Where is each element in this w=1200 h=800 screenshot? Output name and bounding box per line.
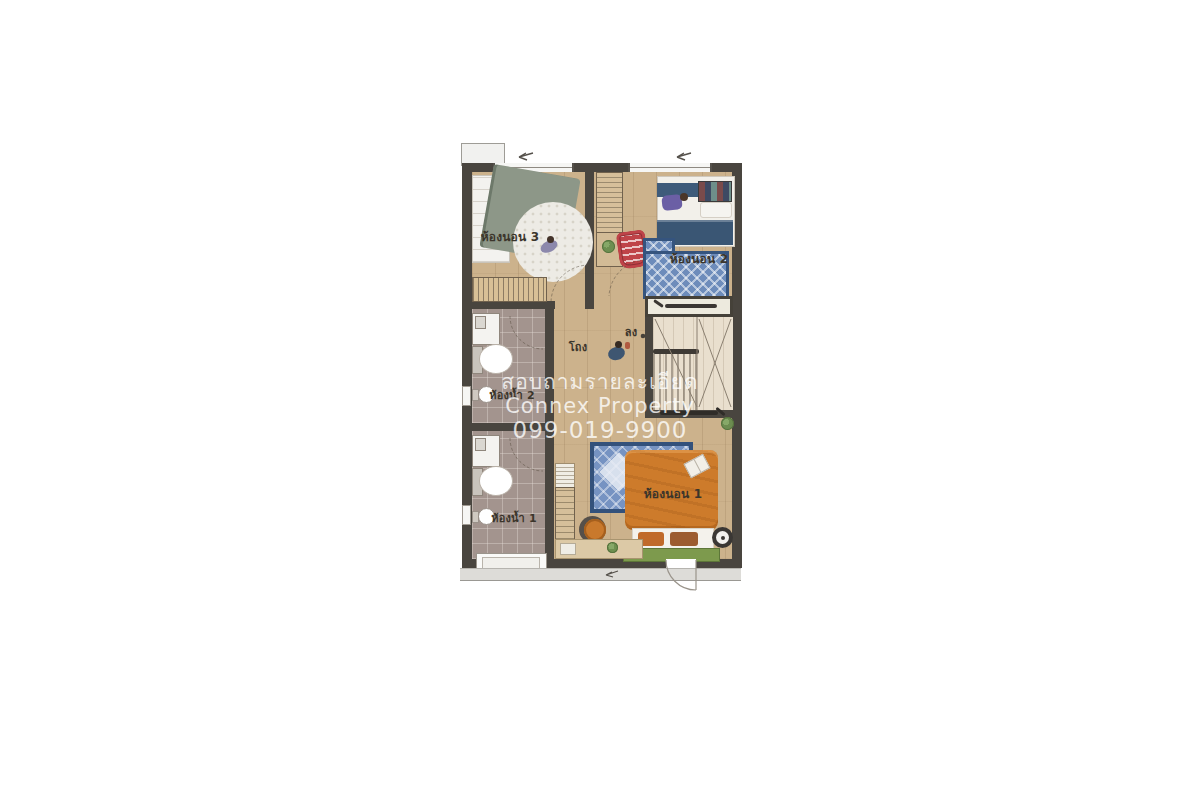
bathroom1-wall-window [462, 505, 471, 525]
bedroom1-label: ห้องนอน 1 [620, 488, 726, 502]
floor-plan: ห้องนอน 3 ห้องนอน 2 ลง โถง [460, 143, 742, 579]
bedroom2-label: ห้องนอน 2 [656, 253, 742, 267]
bed2-person-head [680, 193, 688, 201]
bed2-white-pillow [700, 202, 732, 218]
closet-rail-bar [665, 304, 717, 308]
bathroom1-toilet-bowl [479, 466, 513, 496]
window-bedroom2 [628, 163, 712, 172]
bathroom1-label: ห้องน้ำ 1 [476, 513, 552, 526]
stair-railing [653, 349, 699, 354]
watermark-line1: สอบถามรายละเอียด [0, 370, 1200, 395]
hall-label: โถง [556, 342, 600, 355]
bed1-pouf [584, 519, 606, 541]
screenshot-canvas: ห้องนอน 3 ห้องนอน 2 ลง โถง [0, 0, 1200, 800]
watermark: สอบถามรายละเอียด Connex Property 099-019… [0, 370, 1200, 443]
window-swing-mark-right [677, 153, 691, 160]
bed2-kilim-pillow [698, 181, 732, 202]
bed2-plant-icon [602, 240, 615, 253]
window-swing-mark-left [519, 153, 533, 160]
watermark-line3: 099-019-9900 [0, 418, 1200, 443]
wall-bedroom3-bottom [472, 301, 555, 309]
bed1-speaker-dot [721, 536, 725, 540]
bed2-bookshelf [596, 172, 623, 234]
hall-person-head [615, 341, 622, 348]
bottom-ledge [460, 568, 741, 581]
bathroom2-heater [475, 316, 486, 329]
watermark-line2: Connex Property [0, 395, 1200, 418]
stairs-down-label: ลง [618, 327, 644, 340]
bed1-cushion-right [670, 532, 698, 546]
balcony-door-gap [666, 559, 696, 568]
bed1-desk-plant [607, 542, 618, 553]
bed1-desk-item [560, 543, 576, 555]
bedroom3-label: ห้องนอน 3 [470, 231, 550, 245]
hall-person-bag [625, 342, 630, 349]
hall-shelf-unit [555, 463, 575, 489]
bed3-wardrobe [472, 277, 547, 302]
